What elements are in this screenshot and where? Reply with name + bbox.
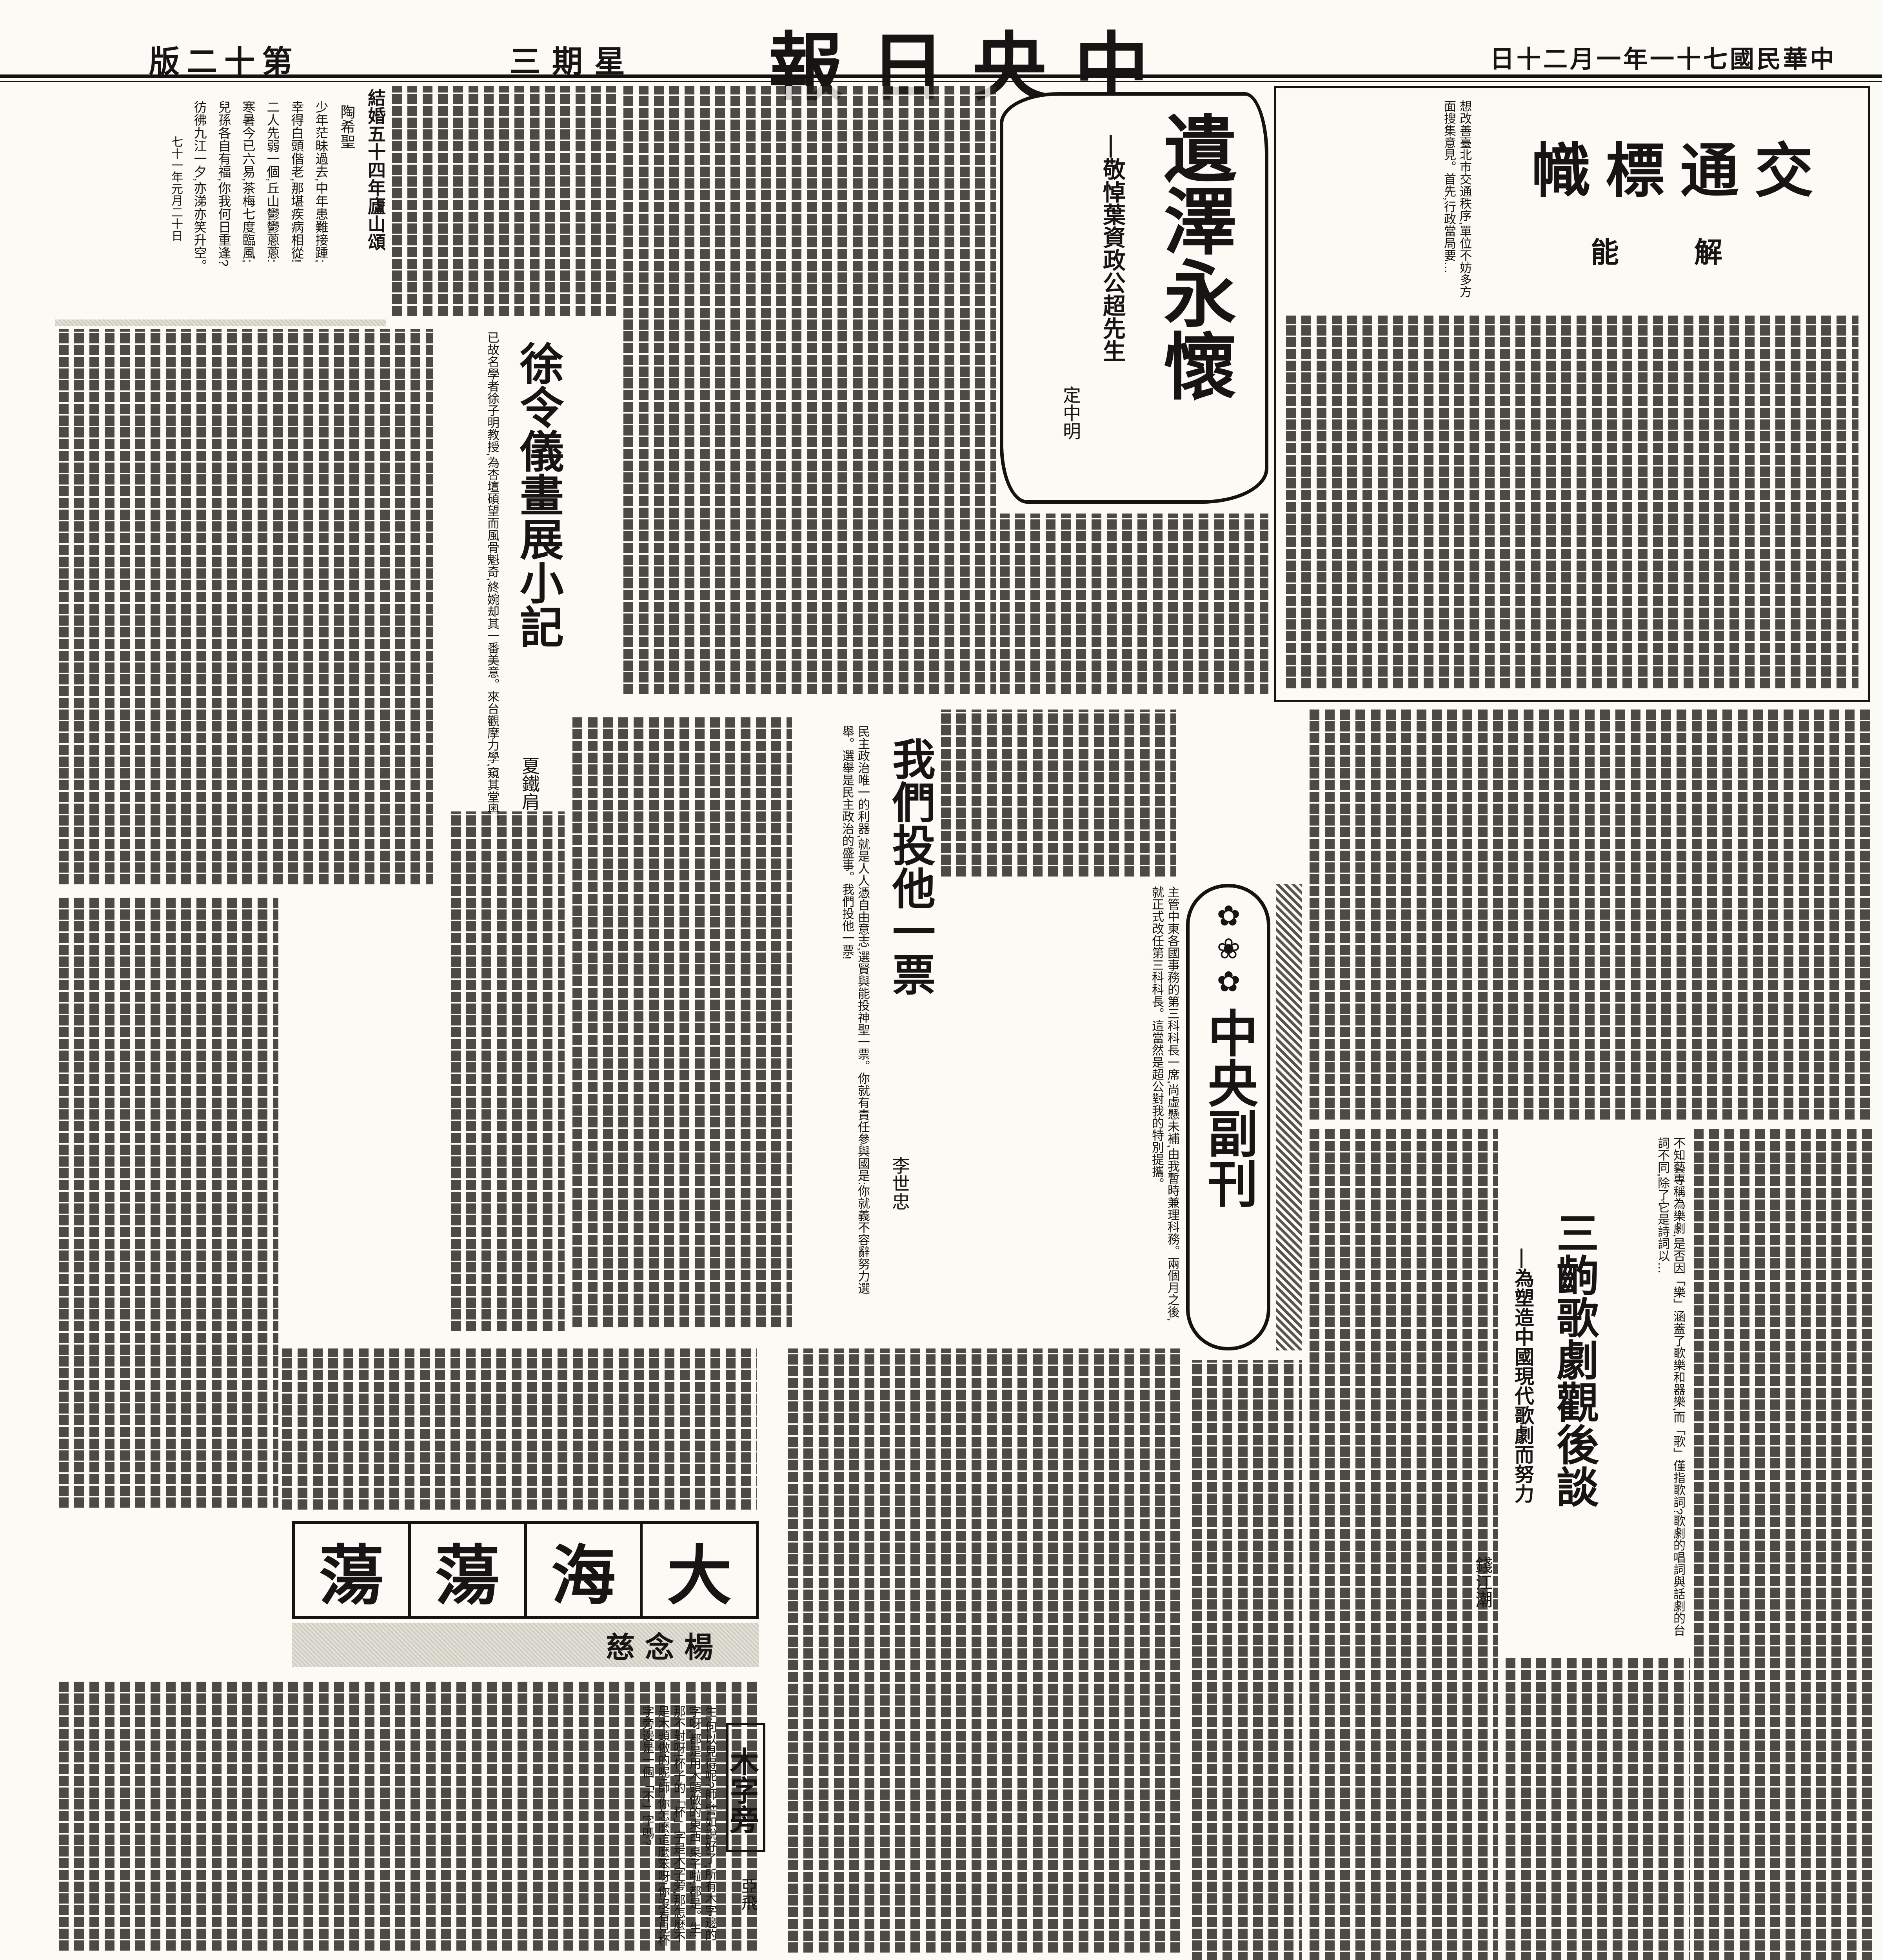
traffic-excerpt: 想改善臺北市交通秩序,單位不妨多方面搜集意見。首先,行政當局要… xyxy=(1288,100,1472,304)
sea-author: 慈念楊 xyxy=(606,1624,723,1666)
sea-title-char: 蕩 xyxy=(411,1524,527,1616)
sea-author-band: 慈念楊 xyxy=(292,1623,759,1667)
text-columns xyxy=(788,1348,1180,1954)
memorial-subtitle: —敬悼葉資政公超先生 xyxy=(1095,111,1128,485)
wood-dialogue-excerpt: 生:何以見得呢?師:譬如說好了,所有木字邊的字呀,都是用木頭做的東西,桌子啦,都… xyxy=(612,1705,718,1948)
memorial-excerpt: 主管中東各國事務的第三科科長一席,尚虛懸未補,由我暫時兼理科務。兩個月之後,就正… xyxy=(1082,886,1180,1333)
text-columns xyxy=(59,329,433,886)
opera-headline: 三齣歌劇觀後談 xyxy=(1543,1211,1604,1564)
memorial-headline: 遺澤永懷 xyxy=(1140,111,1245,485)
text-columns xyxy=(1192,1360,1302,1960)
vote-excerpt: 民主政治唯一的利器,就是人人憑自由意志,選賢與能投神聖一票。你就有責任參與國是:… xyxy=(796,725,870,1313)
text-columns xyxy=(623,86,996,696)
wedding-poem-box: 結婚五十四年廬山頌 陶希聖 少年茫昧過去,中年患難接踵; 幸得白頭偕老,那堪疾病… xyxy=(55,86,391,322)
poem-line: 幸得白頭偕老,那堪疾病相從! xyxy=(287,89,306,320)
text-columns xyxy=(1506,1658,1690,1960)
poem-line: 彷彿九江一夕,亦涕亦笑升空。 xyxy=(190,89,209,320)
text-columns xyxy=(1694,1129,1874,1960)
poem-author: 陶希聖 xyxy=(336,89,357,320)
poem-title: 結婚五十四年廬山頌 xyxy=(363,89,389,320)
flower-ornament-icon: ✿❀✿ xyxy=(1214,899,1243,998)
opera-subtitle: —為塑造中國現代歌劇而努力 xyxy=(1509,1249,1537,1574)
newspaper-page: 版二十第 三期星 報日央中 日十二月一年一十七國民華中 結婚五十四年廬山頌 陶希… xyxy=(0,0,1882,1960)
header-rule-thin xyxy=(0,81,1882,82)
sea-title-char: 大 xyxy=(643,1524,756,1616)
exhibition-headline: 徐令儀畫展小記 xyxy=(506,341,569,733)
traffic-subtitle: 能 解 xyxy=(1531,229,1806,270)
opera-excerpt: 不知藝專稱為樂劇,是否因「樂」涵蓋了歌樂和器樂,而「歌」僅指歌詞?歌劇的唱詞與話… xyxy=(1600,1137,1686,1642)
text-columns xyxy=(941,710,1176,878)
text-columns xyxy=(1000,514,1268,696)
text-columns xyxy=(392,86,618,318)
text-columns xyxy=(1310,1129,1498,1960)
text-columns xyxy=(1310,710,1874,1121)
sea-title-box: 蕩 蕩 海 大 xyxy=(292,1521,759,1619)
sea-title-char: 海 xyxy=(527,1524,643,1616)
traffic-article-box: 幟標通交 能 解 想改善臺北市交通秩序,單位不妨多方面搜集意見。首先,行政當局要… xyxy=(1274,86,1870,702)
wood-byline: 亞飛 xyxy=(736,1878,760,1911)
memorial-byline: 定中明 xyxy=(1058,111,1084,485)
opera-byline: 錢江潮 xyxy=(1470,1556,1495,1608)
supplement-banner: ✿❀✿ 中央副刊 xyxy=(1186,884,1270,1350)
text-columns xyxy=(282,1348,757,1511)
text-columns xyxy=(1286,316,1858,690)
vote-headline: 我們投他一票 xyxy=(878,737,941,1102)
poem-line: 寒暑今已六易,茶梅七度臨風; xyxy=(238,89,257,320)
poem-line: 兒孫各自有福,你我何日重逢? xyxy=(214,89,233,320)
text-columns xyxy=(451,811,565,1333)
exhibition-byline: 夏鐵肩 xyxy=(517,757,543,811)
wood-title-box: 木字旁 xyxy=(726,1723,765,1852)
poem-line: 少年茫昧過去,中年患難接踵; xyxy=(311,89,330,320)
header-rule-thick xyxy=(0,74,1882,78)
text-columns xyxy=(572,717,792,1329)
exhibition-excerpt: 已故名學者徐子明教授,為杏壇碩望而風骨魁奇,終婉却其一番美意。來台觀摩力學,窺其… xyxy=(437,331,500,880)
supplement-banner-title: 中央副刊 xyxy=(1192,1007,1264,1208)
sea-title-char: 蕩 xyxy=(295,1524,411,1616)
page-date: 日十二月一年一十七國民華中 xyxy=(1490,39,1837,74)
vote-byline: 李世忠 xyxy=(887,1156,913,1210)
poem-line: 七十一年元月二十日 xyxy=(167,89,184,320)
decorative-band xyxy=(1276,884,1302,1350)
traffic-headline: 幟標通交 xyxy=(1492,123,1868,209)
text-columns xyxy=(59,898,278,1509)
poem-box-shade xyxy=(55,319,386,326)
poem-line: 二人先弱一個,丘山鬱鬱蔥蔥: xyxy=(263,89,282,320)
memorial-title-box: 遺澤永懷 —敬悼葉資政公超先生 定中明 xyxy=(1000,92,1268,504)
